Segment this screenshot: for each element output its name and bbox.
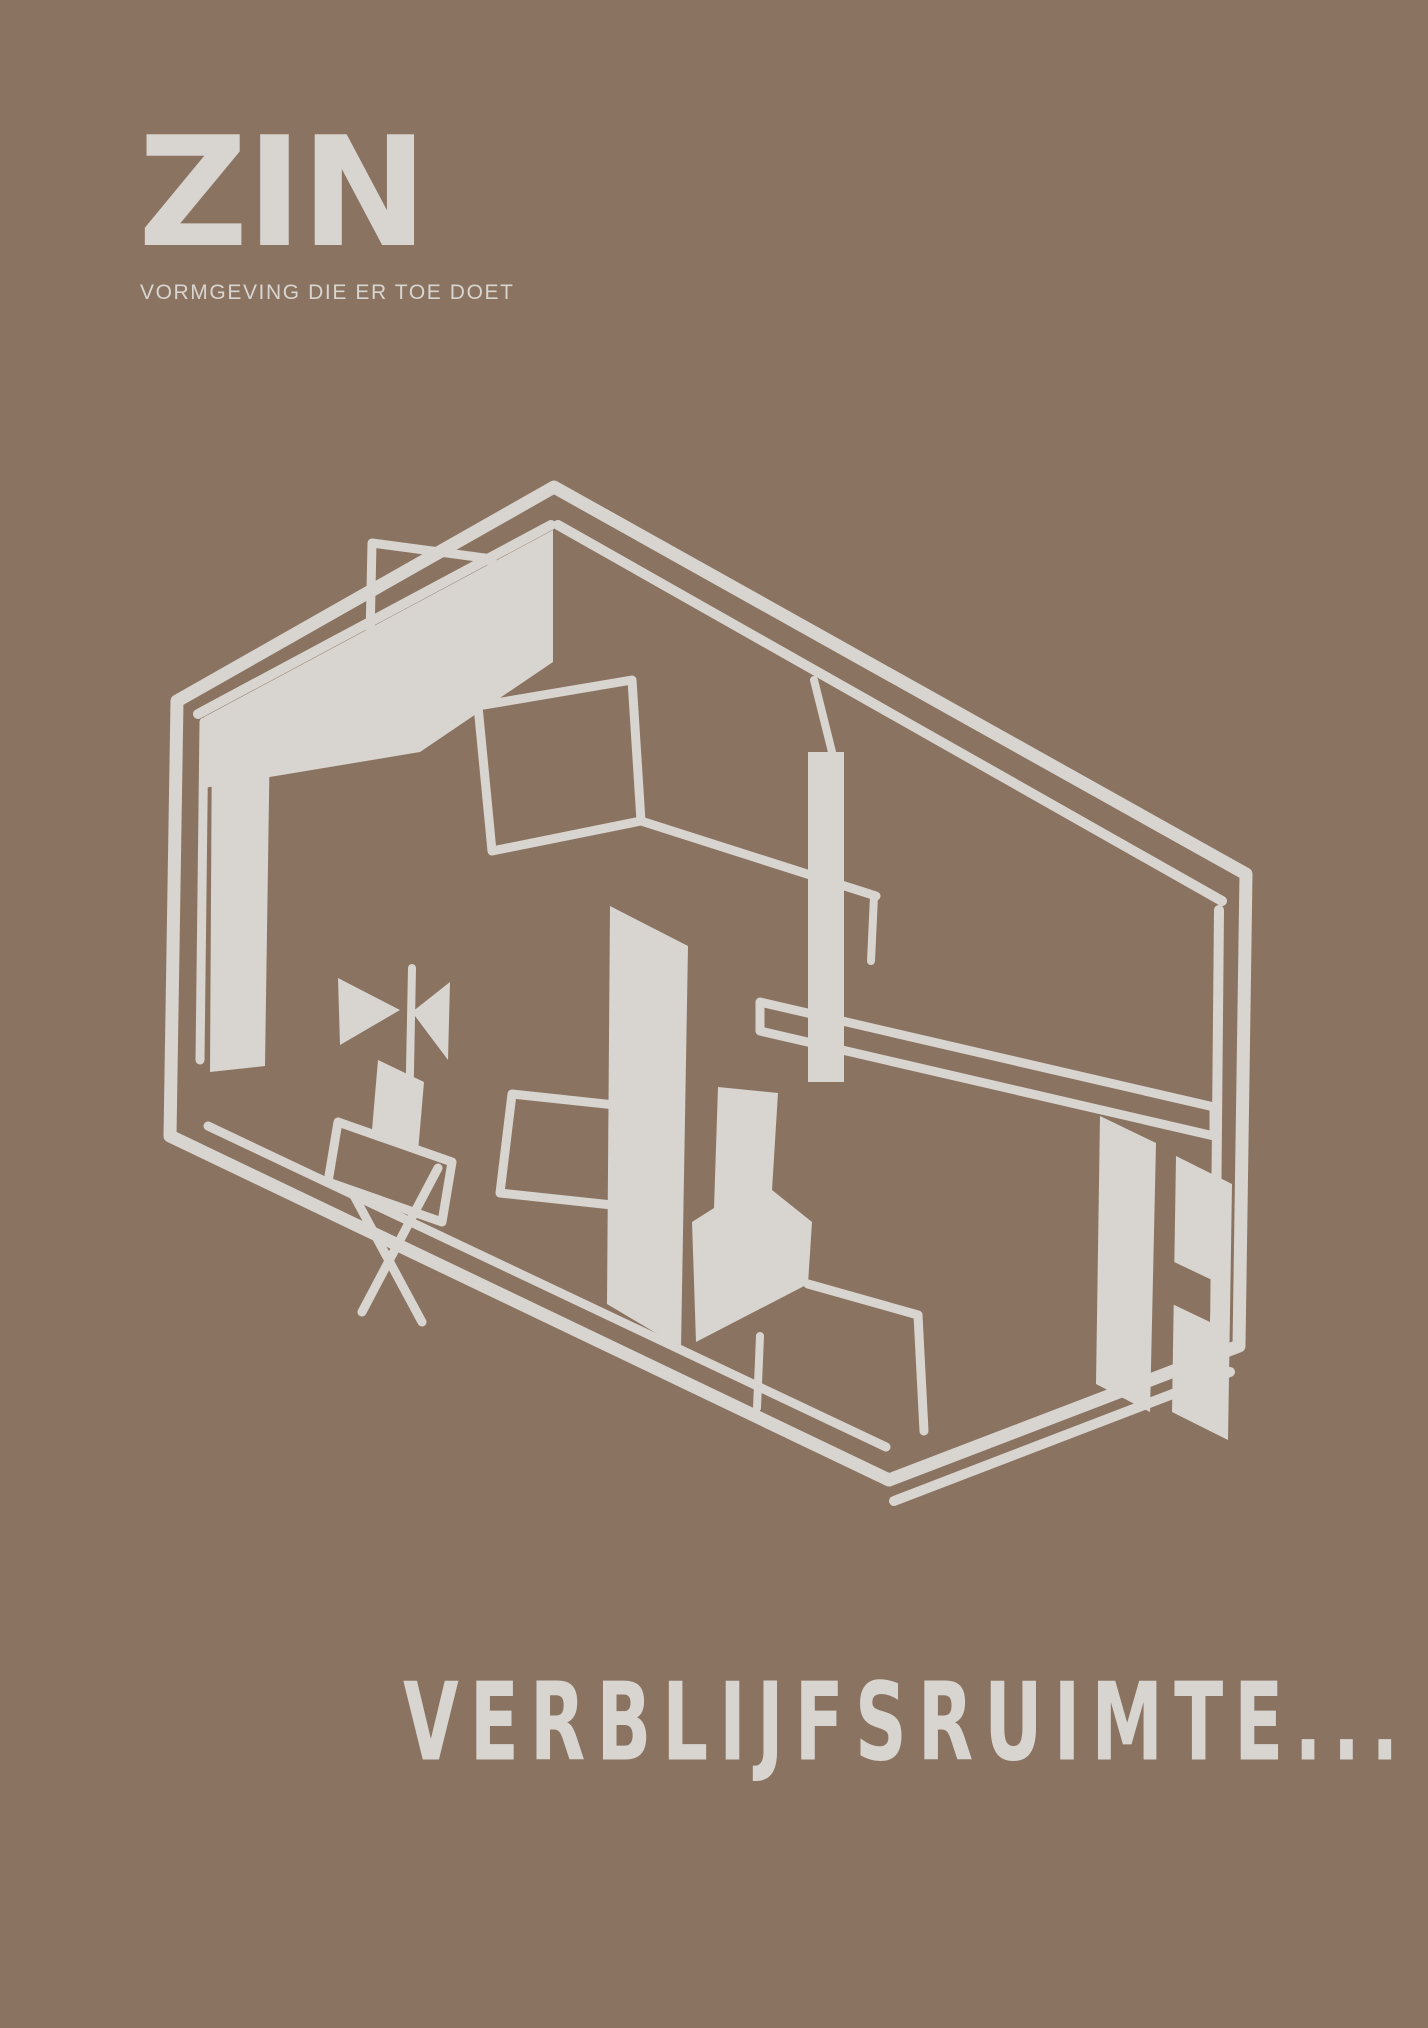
inner-top-right-edge <box>558 525 1222 901</box>
poster-title: VERBLIJFSRUIMTE... <box>403 1668 1409 1776</box>
room-sketch <box>120 360 1280 1590</box>
chair-bowtie-left <box>338 978 400 1045</box>
lamp-post <box>808 752 844 1082</box>
brand-wordmark: ZIN <box>138 117 426 269</box>
chair-silhouette <box>692 1087 812 1342</box>
chair-leg-3 <box>757 1336 760 1408</box>
chair-leg-2 <box>918 1315 924 1431</box>
poster-background: ZIN VORMGEVING DIE ER TOE DOET <box>0 0 1428 2028</box>
lamp-cord <box>814 680 832 752</box>
floor-lamp-pole <box>409 968 412 1120</box>
right-wall-slab-1 <box>1096 1116 1156 1412</box>
desk-support <box>871 896 874 961</box>
brand-tagline: VORMGEVING DIE ER TOE DOET <box>140 281 515 305</box>
brand-logo: ZIN <box>138 117 426 269</box>
left-wall-face <box>210 722 270 1072</box>
inner-left-edge <box>200 722 204 1060</box>
desk-top <box>478 680 641 851</box>
base-edge-right <box>894 1372 1230 1501</box>
chair-leg-1 <box>808 1284 918 1315</box>
chair-bowtie-right <box>412 982 450 1060</box>
